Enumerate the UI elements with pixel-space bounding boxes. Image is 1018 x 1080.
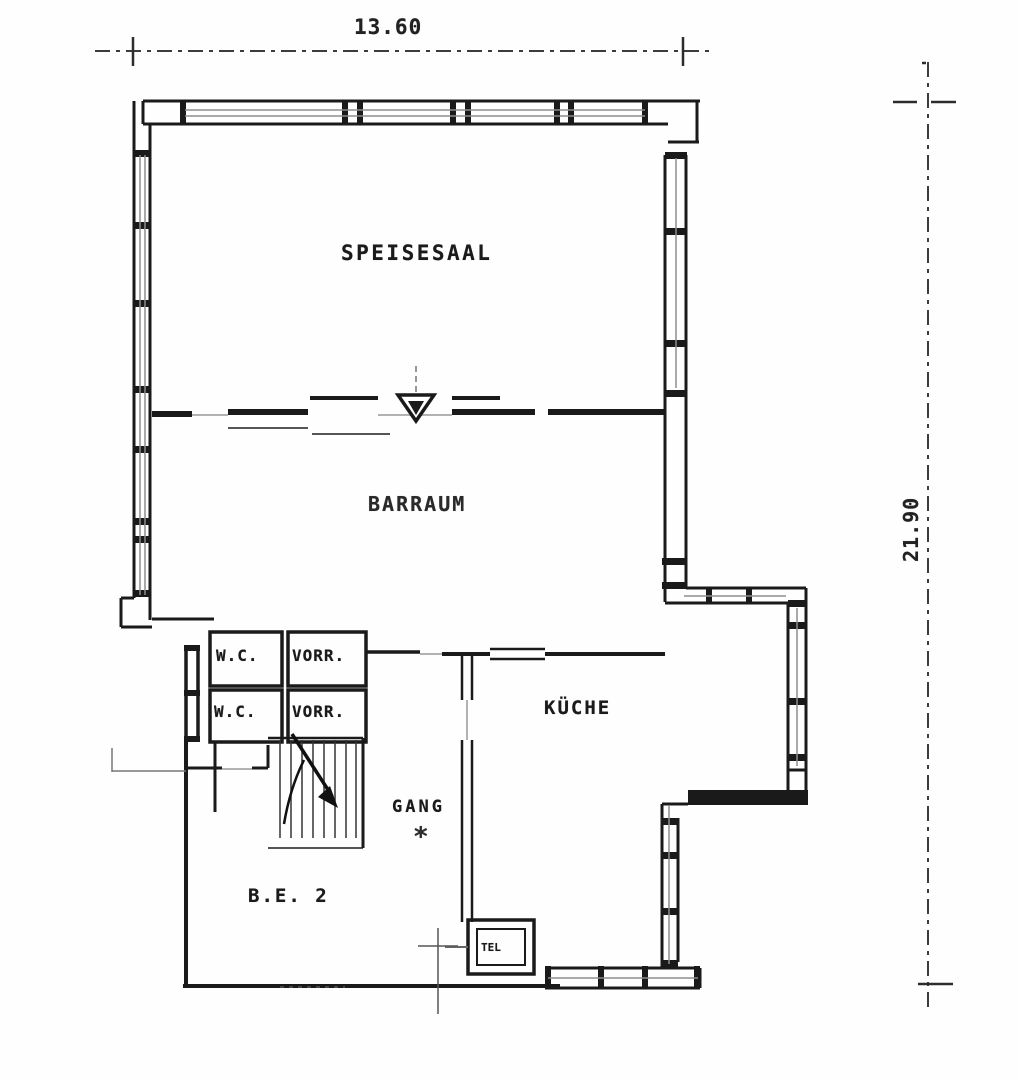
staircase bbox=[268, 738, 363, 848]
exterior-walls bbox=[121, 101, 806, 988]
floor-plan-drawing bbox=[0, 0, 1018, 1080]
dimension-width-label: 13.60 bbox=[354, 15, 422, 39]
entrance-marker bbox=[398, 366, 434, 421]
floor-plan-sheet: 13.60 21.90 SPEISESAAL BARRAUM W.C. VORR… bbox=[0, 0, 1018, 1080]
room-label-tel: TEL bbox=[481, 941, 501, 954]
section-line bbox=[280, 928, 458, 1014]
kitchen-south-wall bbox=[688, 790, 808, 805]
room-label-barraum: BARRAUM bbox=[368, 492, 466, 516]
room-label-speisesaal: SPEISESAAL bbox=[341, 241, 492, 265]
dimension-height-label: 21.90 bbox=[899, 497, 923, 562]
room-label-vorr-lower: VORR. bbox=[292, 702, 345, 721]
room-label-kueche: KÜCHE bbox=[544, 697, 611, 719]
room-label-gang: GANG bbox=[392, 797, 445, 817]
room-label-vorr-upper: VORR. bbox=[292, 646, 345, 665]
room-label-wc-lower: W.C. bbox=[214, 702, 257, 721]
room-label-be2: B.E. 2 bbox=[248, 885, 329, 907]
window-mullions bbox=[134, 101, 806, 988]
gang-kueche-divider bbox=[462, 654, 472, 922]
kitchen-north-wall bbox=[366, 649, 665, 659]
room-label-wc-upper: W.C. bbox=[216, 646, 259, 665]
gang-footnote-mark: * bbox=[413, 822, 429, 852]
stair-direction-arrow bbox=[284, 734, 338, 824]
